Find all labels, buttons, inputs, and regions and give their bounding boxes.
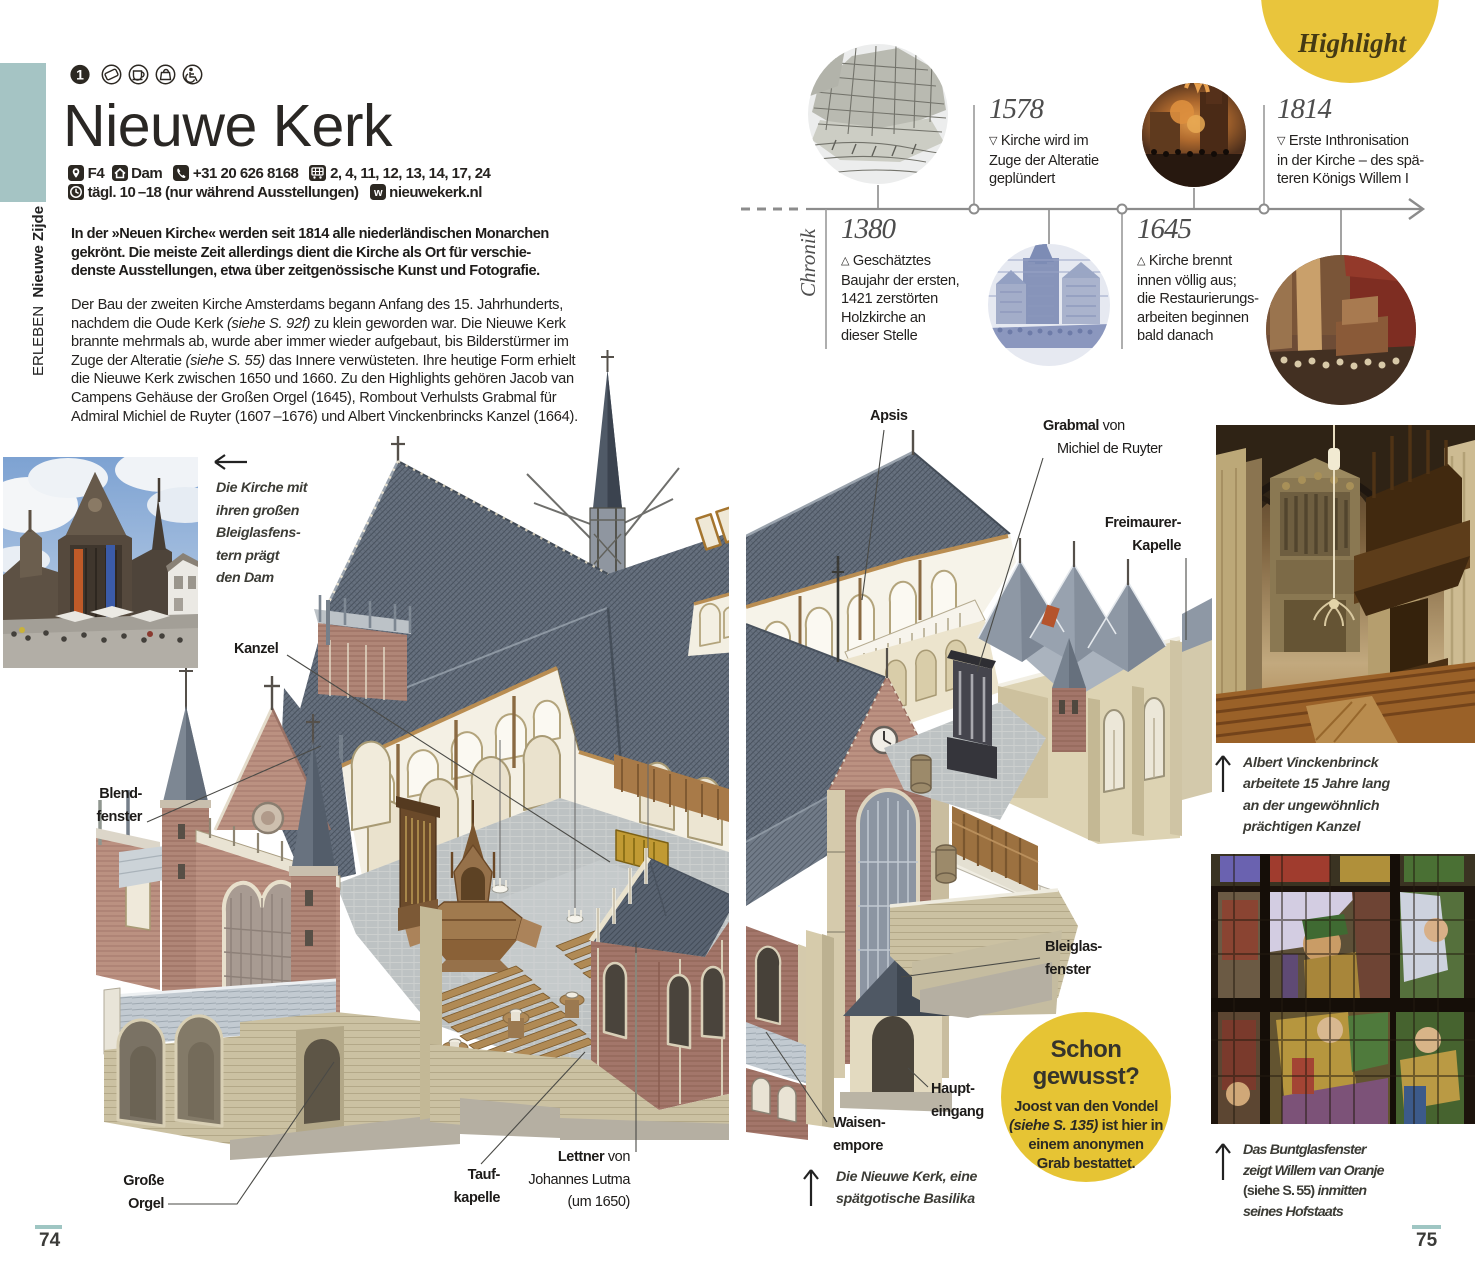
svg-text:1: 1	[76, 67, 84, 83]
svg-text:w: w	[372, 187, 382, 199]
